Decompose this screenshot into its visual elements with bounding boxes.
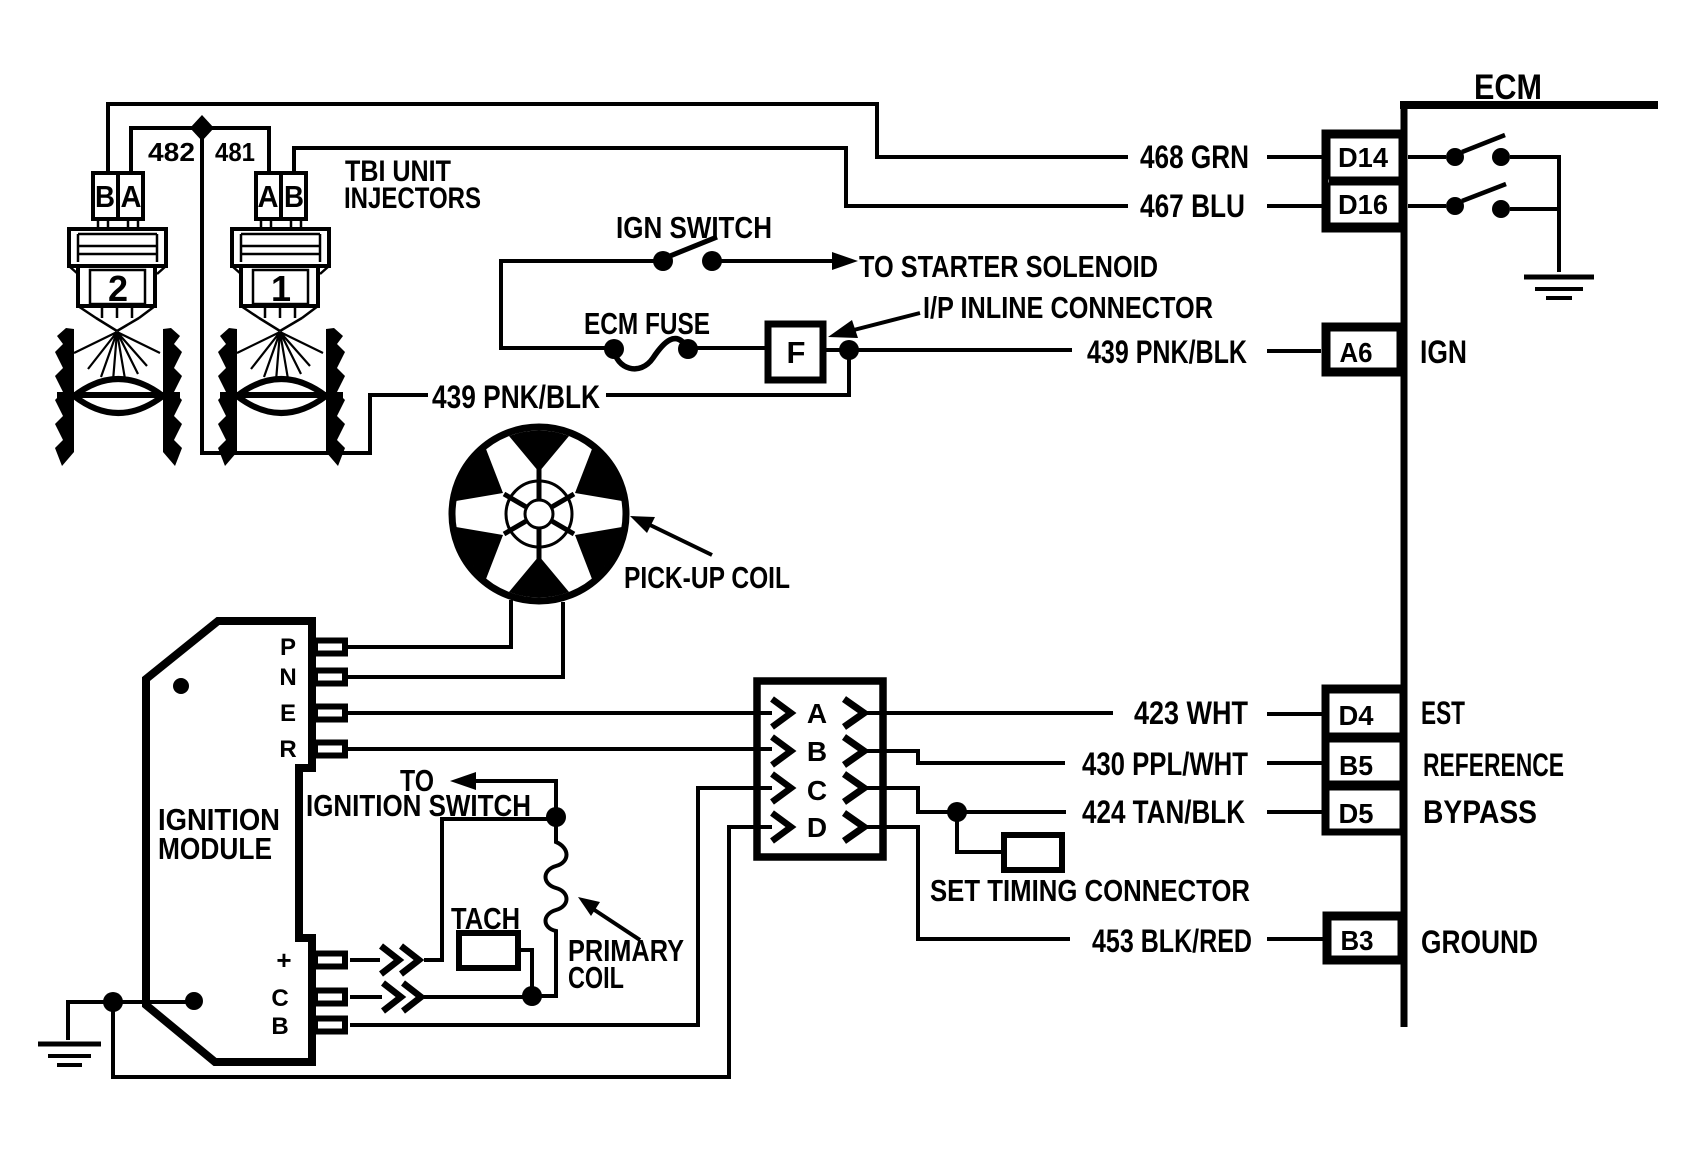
svg-text:A: A [258,179,279,214]
svg-text:N: N [279,664,296,691]
svg-text:B3: B3 [1341,925,1374,956]
svg-text:C: C [271,985,288,1012]
svg-text:B5: B5 [1339,750,1373,781]
svg-text:468 GRN: 468 GRN [1140,139,1249,175]
svg-text:1: 1 [271,268,291,309]
svg-text:A6: A6 [1340,337,1373,368]
svg-text:+: + [276,945,291,975]
svg-text:MODULE: MODULE [158,831,272,866]
svg-text:424 TAN/BLK: 424 TAN/BLK [1082,794,1245,830]
svg-text:IGN: IGN [1420,334,1467,370]
svg-text:PICK-UP COIL: PICK-UP COIL [624,560,790,595]
svg-text:430 PPL/WHT: 430 PPL/WHT [1082,746,1248,782]
svg-text:INJECTORS: INJECTORS [344,182,481,215]
svg-text:ECM FUSE: ECM FUSE [584,306,710,341]
svg-text:B: B [271,1013,288,1040]
svg-text:E: E [280,700,296,727]
svg-text:D14: D14 [1338,142,1388,173]
svg-text:439 PNK/BLK: 439 PNK/BLK [1087,334,1247,370]
svg-text:C: C [807,775,827,806]
svg-text:BYPASS: BYPASS [1423,794,1537,830]
svg-text:2: 2 [108,268,128,309]
svg-text:I/P INLINE CONNECTOR: I/P INLINE CONNECTOR [923,290,1213,325]
svg-text:F: F [787,335,806,370]
svg-text:B: B [284,179,304,214]
svg-text:B: B [807,736,827,767]
svg-text:EST: EST [1421,695,1465,731]
svg-text:D16: D16 [1338,189,1388,220]
svg-text:P: P [280,634,296,661]
svg-text:481: 481 [215,137,255,167]
svg-text:IGN SWITCH: IGN SWITCH [616,210,772,245]
svg-text:467 BLU: 467 BLU [1140,188,1245,224]
svg-text:453 BLK/RED: 453 BLK/RED [1092,923,1252,959]
svg-text:423 WHT: 423 WHT [1134,695,1248,731]
svg-text:482: 482 [148,137,195,167]
svg-text:D4: D4 [1339,700,1374,731]
svg-text:B: B [95,179,115,214]
svg-text:D5: D5 [1339,798,1374,829]
svg-text:REFERENCE: REFERENCE [1423,747,1564,783]
svg-text:A: A [807,698,827,729]
svg-text:D: D [807,812,827,843]
svg-text:A: A [121,179,142,214]
svg-text:TO STARTER SOLENOID: TO STARTER SOLENOID [859,249,1158,284]
svg-text:COIL: COIL [568,960,624,995]
svg-text:439 PNK/BLK: 439 PNK/BLK [432,379,600,415]
svg-text:SET TIMING CONNECTOR: SET TIMING CONNECTOR [930,873,1250,908]
svg-text:GROUND: GROUND [1421,924,1538,960]
svg-text:R: R [279,736,296,763]
